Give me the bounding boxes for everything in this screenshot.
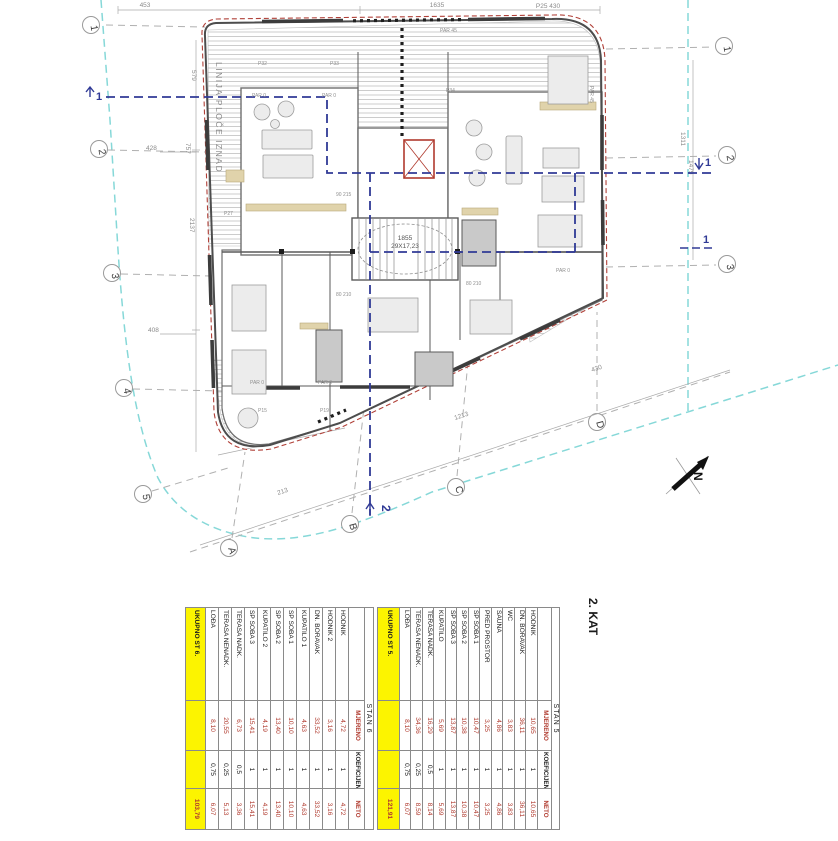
stairs: 1855 29X17,23 — [352, 218, 458, 280]
room-value: 1 — [503, 751, 515, 789]
room-value: 0,75 — [206, 751, 219, 789]
label-par45: PAR 45 — [440, 28, 457, 34]
bathroom-3 — [415, 352, 453, 386]
room-value: 1 — [323, 751, 336, 789]
column-header: NETO — [349, 789, 365, 830]
table-row: KUPATILO5,6915,69 — [434, 608, 446, 830]
room-value: 6,07 — [400, 789, 412, 830]
table-row: TERASA NADK.16,290,58,14 — [423, 608, 435, 830]
room-value: 10,38 — [457, 701, 469, 751]
room-value: 1 — [271, 751, 284, 789]
room-value: 1 — [336, 751, 349, 789]
room-name: SP SOBA 2 — [271, 608, 284, 701]
table-row: SP SOBA 110,10110,10 — [284, 608, 297, 830]
dining-table — [262, 130, 312, 149]
slab-line-label: LINIJA PLOČE IZNAD — [214, 62, 224, 173]
table-title: STAN 5 — [552, 608, 560, 830]
room-value: 4,72 — [336, 701, 349, 751]
table-row: HODNIK10,65110,65 — [526, 608, 538, 830]
room-value: 34,36 — [411, 701, 423, 751]
table-row: LOĐA8,100,756,07 — [400, 608, 412, 830]
room-value: 33,52 — [310, 789, 323, 830]
room-value: 8,10 — [400, 701, 412, 751]
table-row: DN. BORAVAK33,52133,52 — [310, 608, 323, 830]
label-par0: PAR 0 — [252, 93, 266, 99]
dim-left-2137: 2137 — [188, 218, 195, 233]
room-value: 1 — [457, 751, 469, 789]
room-value: 6,07 — [206, 789, 219, 830]
label-p33: P33 — [330, 61, 339, 67]
room-name: HODNIK — [336, 608, 349, 701]
north-label: N — [691, 472, 705, 481]
label-p27: P27 — [224, 211, 233, 217]
room-name: TERASA NENADK. — [411, 608, 423, 701]
table-row: WC3,8313,83 — [503, 608, 515, 830]
room-value: 1 — [245, 751, 258, 789]
column-header: MJERENO — [349, 701, 365, 751]
grid-bubble-label: D — [593, 420, 605, 430]
total-row: UKUPNO ST 6.103,79 — [186, 608, 206, 830]
room-value: 1 — [434, 751, 446, 789]
total-empty — [378, 701, 400, 751]
section-marker-label: 1 — [705, 157, 711, 169]
room-value: 10,47 — [469, 701, 481, 751]
table-row: DN. BORAVAK36,11136,11 — [515, 608, 527, 830]
room-name: HODNIK 2 — [323, 608, 336, 701]
grid-bubble-left-3: 3 — [104, 265, 121, 282]
room-value: 4,86 — [492, 701, 504, 751]
room-value: 0,75 — [400, 751, 412, 789]
room-value: 13,87 — [446, 789, 458, 830]
dim-top-left: 453 — [140, 2, 151, 9]
room-value: 6,73 — [232, 701, 245, 751]
armchair — [254, 104, 270, 120]
room-value: 5,69 — [434, 701, 446, 751]
dim-left-428: 428 — [146, 145, 157, 152]
section-marker-label: 1 — [96, 91, 102, 103]
room-value: 3,36 — [232, 789, 245, 830]
grid-bubble-left-1: 1 — [83, 17, 100, 34]
room-value: 13,87 — [446, 701, 458, 751]
room-value: 3,25 — [480, 789, 492, 830]
room-name: SP SOBA 3 — [446, 608, 458, 701]
room-value: 16,29 — [423, 701, 435, 751]
room-value: 15,41 — [245, 789, 258, 830]
room-value: 1 — [284, 751, 297, 789]
room-value: 4,19 — [258, 789, 271, 830]
label-par0: PAR 0 — [250, 380, 264, 386]
table-row: LOĐA8,100,756,07 — [206, 608, 219, 830]
table-row: SP SOBA 210,38110,38 — [457, 608, 469, 830]
label-p19: P19 — [320, 408, 329, 414]
table-title: STAN 6 — [365, 608, 374, 830]
bed — [548, 56, 588, 104]
label-par0: PAR 0 — [322, 93, 336, 99]
room-value: 33,52 — [310, 701, 323, 751]
room-value: 13,40 — [271, 701, 284, 751]
total-empty — [186, 751, 206, 789]
label-door90: 90 215 — [336, 192, 352, 198]
room-value: 13,40 — [271, 789, 284, 830]
room-value: 4,72 — [336, 789, 349, 830]
label-par45: PAR 45 — [588, 86, 594, 103]
room-value: 10,47 — [469, 789, 481, 830]
grid-bubble-B: B — [342, 516, 359, 533]
stair-count-label: 29X17,23 — [391, 243, 419, 250]
grid-bubble-C: C — [448, 479, 465, 496]
bed — [232, 285, 266, 331]
bed — [470, 300, 512, 334]
column-header — [349, 608, 365, 701]
room-name: KUPATILO — [434, 608, 446, 701]
table-row: SP SOBA 313,87113,87 — [446, 608, 458, 830]
room-name: KUPATILO 2 — [258, 608, 271, 701]
dim-left-408: 408 — [148, 327, 159, 334]
room-value: 0,5 — [232, 751, 245, 789]
room-value: 10,10 — [284, 701, 297, 751]
room-value: 3,83 — [503, 789, 515, 830]
room-value: 4,19 — [258, 701, 271, 751]
room-value: 3,16 — [323, 789, 336, 830]
sofa — [506, 136, 522, 184]
room-name: SP SOBA 3 — [245, 608, 258, 701]
grid-bubble-label: C — [452, 485, 464, 495]
armchair — [466, 120, 482, 136]
table-stan6-wrap: STAN 6MJERENOKOEFICIJENTNETOHODNIK4,7214… — [186, 607, 374, 829]
total-label: UKUPNO ST 6. — [186, 608, 206, 701]
table-row: KUPATILO 14,6314,63 — [297, 608, 310, 830]
room-name: SP SOBA 1 — [284, 608, 297, 701]
room-value: 4,86 — [492, 789, 504, 830]
room-name: PRED PROSTOR — [480, 608, 492, 701]
table-row: SP SOBA 213,40113,40 — [271, 608, 284, 830]
room-value: 3,16 — [323, 701, 336, 751]
room-value: 3,83 — [503, 701, 515, 751]
total-empty — [186, 701, 206, 751]
floor-title: 2. KAT — [586, 598, 600, 636]
label-p34: P34 — [446, 88, 455, 94]
section-marker-1-left: 1 — [86, 87, 102, 103]
room-value: 15,41 — [245, 701, 258, 751]
floorplan-sheet: 1 2 3 4 5 1 2 3 A B C D 453 1635 P25 430… — [0, 0, 838, 841]
room-value: 3,25 — [480, 701, 492, 751]
room-name: DN. BORAVAK — [515, 608, 527, 701]
room-name: TERASA NADK. — [232, 608, 245, 701]
label-door80: 80 210 — [466, 281, 482, 287]
room-name: HODNIK — [526, 608, 538, 701]
table-row: HODNIK 23,1613,16 — [323, 608, 336, 830]
table-row: SAUNA4,8614,86 — [492, 608, 504, 830]
grid-bubble-left-5: 5 — [135, 486, 152, 503]
room-name: SAUNA — [492, 608, 504, 701]
table-row: TERASA NADK.6,730,53,36 — [232, 608, 245, 830]
dim-top-right: P25 430 — [536, 3, 561, 10]
room-value: 8,10 — [206, 701, 219, 751]
room-name: WC — [503, 608, 515, 701]
room-name: DN. BORAVAK — [310, 608, 323, 701]
room-value: 1 — [515, 751, 527, 789]
grid-bubble-right-1: 1 — [716, 38, 733, 55]
bathroom-2 — [316, 330, 342, 382]
coffee-table — [271, 120, 280, 129]
room-value: 8,14 — [423, 789, 435, 830]
room-value: 20,55 — [219, 701, 232, 751]
room-value: 36,11 — [515, 701, 527, 751]
room-value: 4,63 — [297, 789, 310, 830]
room-name: KUPATILO 1 — [297, 608, 310, 701]
room-value: 10,10 — [284, 789, 297, 830]
room-value: 10,38 — [457, 789, 469, 830]
room-name: LOĐA — [206, 608, 219, 701]
room-value: 0,5 — [423, 751, 435, 789]
label-p15: P15 — [258, 408, 267, 414]
room-value: 1 — [480, 751, 492, 789]
column-header: KOEFICIJENT — [349, 751, 365, 789]
table-stan5-wrap: STAN 5MJERENOKOEFICIJENTNETOHODNIK10,651… — [378, 607, 560, 829]
room-value: 0,25 — [219, 751, 232, 789]
label-par0: PAR 0 — [318, 380, 332, 386]
dim-right-1311: 1311 — [679, 132, 686, 146]
room-value: 8,59 — [411, 789, 423, 830]
grid-bubble-left-2: 2 — [91, 141, 108, 158]
section-marker-1-right: 1 — [695, 157, 711, 169]
room-value: 10,65 — [526, 701, 538, 751]
room-value: 10,65 — [526, 789, 538, 830]
column-header: MJERENO — [538, 701, 552, 751]
room-name: LOĐA — [400, 608, 412, 701]
grid-bubble-left-4: 4 — [116, 380, 133, 397]
bed — [368, 298, 418, 332]
total-empty — [378, 751, 400, 789]
grid-bubble-right-3: 3 — [719, 256, 736, 273]
grid-bubble-right-2: 2 — [719, 147, 736, 164]
table-row: KUPATILO 24,1914,19 — [258, 608, 271, 830]
total-row: UKUPNO ST 5.121,91 — [378, 608, 400, 830]
room-value: 0,25 — [411, 751, 423, 789]
table-row: TERASA NENADK.34,360,258,59 — [411, 608, 423, 830]
label-par0: PAR 0 — [556, 268, 570, 274]
table-row: TERASA NENADK.20,550,255,13 — [219, 608, 232, 830]
stair-dim-label: 1855 — [398, 235, 413, 242]
room-value: 1 — [258, 751, 271, 789]
table-row: PRED PROSTOR3,2513,25 — [480, 608, 492, 830]
room-value: 1 — [492, 751, 504, 789]
dining-table — [263, 155, 313, 178]
label-p32: P32 — [258, 61, 267, 67]
dim-top-mid: 1635 — [430, 2, 445, 9]
room-value: 1 — [297, 751, 310, 789]
column-header: KOEFICIJENT — [538, 751, 552, 789]
section-marker-1-mid-right: 1 — [680, 234, 716, 248]
room-value: 5,13 — [219, 789, 232, 830]
bathroom-1 — [462, 220, 496, 266]
room-name: SP SOBA 2 — [457, 608, 469, 701]
room-value: 1 — [469, 751, 481, 789]
section-marker-label: 2 — [379, 505, 393, 512]
room-value: 36,11 — [515, 789, 527, 830]
room-name: SP SOBA 1 — [469, 608, 481, 701]
room-name: TERASA NADK. — [423, 608, 435, 701]
total-label: UKUPNO ST 5. — [378, 608, 400, 701]
terrace-table — [238, 408, 258, 428]
total-value: 103,79 — [186, 789, 206, 830]
bed — [232, 350, 266, 394]
armchair — [476, 144, 492, 160]
dim-left-579: 579 — [190, 70, 197, 81]
north-arrow: N — [666, 456, 709, 494]
room-value: 5,69 — [434, 789, 446, 830]
dim-bottom-430: 430 — [590, 364, 603, 374]
armchair — [278, 101, 294, 117]
room-value: 1 — [446, 751, 458, 789]
kitchen-island — [543, 148, 579, 168]
dim-diag-1213: 1213 — [453, 411, 469, 422]
table-row: SP SOBA 110,47110,47 — [469, 608, 481, 830]
label-door80: 80 210 — [336, 292, 352, 298]
column-header: NETO — [538, 789, 552, 830]
table-row: SP SOBA 315,41115,41 — [245, 608, 258, 830]
column-header — [538, 608, 552, 701]
dining-table — [542, 176, 584, 202]
total-value: 121,91 — [378, 789, 400, 830]
room-name: TERASA NENADK. — [219, 608, 232, 701]
table-row: HODNIK4,7214,72 — [336, 608, 349, 830]
room-value: 1 — [526, 751, 538, 789]
grid-bubble-A: A — [221, 540, 238, 557]
section-marker-label: 1 — [703, 234, 709, 246]
area-table-stan-5: STAN 5MJERENOKOEFICIJENTNETOHODNIK10,651… — [377, 607, 560, 830]
room-value: 1 — [310, 751, 323, 789]
room-value: 4,63 — [297, 701, 310, 751]
dim-left-757: 757 — [184, 143, 191, 154]
area-table-stan-6: STAN 6MJERENOKOEFICIJENTNETOHODNIK4,7214… — [185, 607, 374, 830]
dim-diag-213: 213 — [276, 487, 289, 497]
